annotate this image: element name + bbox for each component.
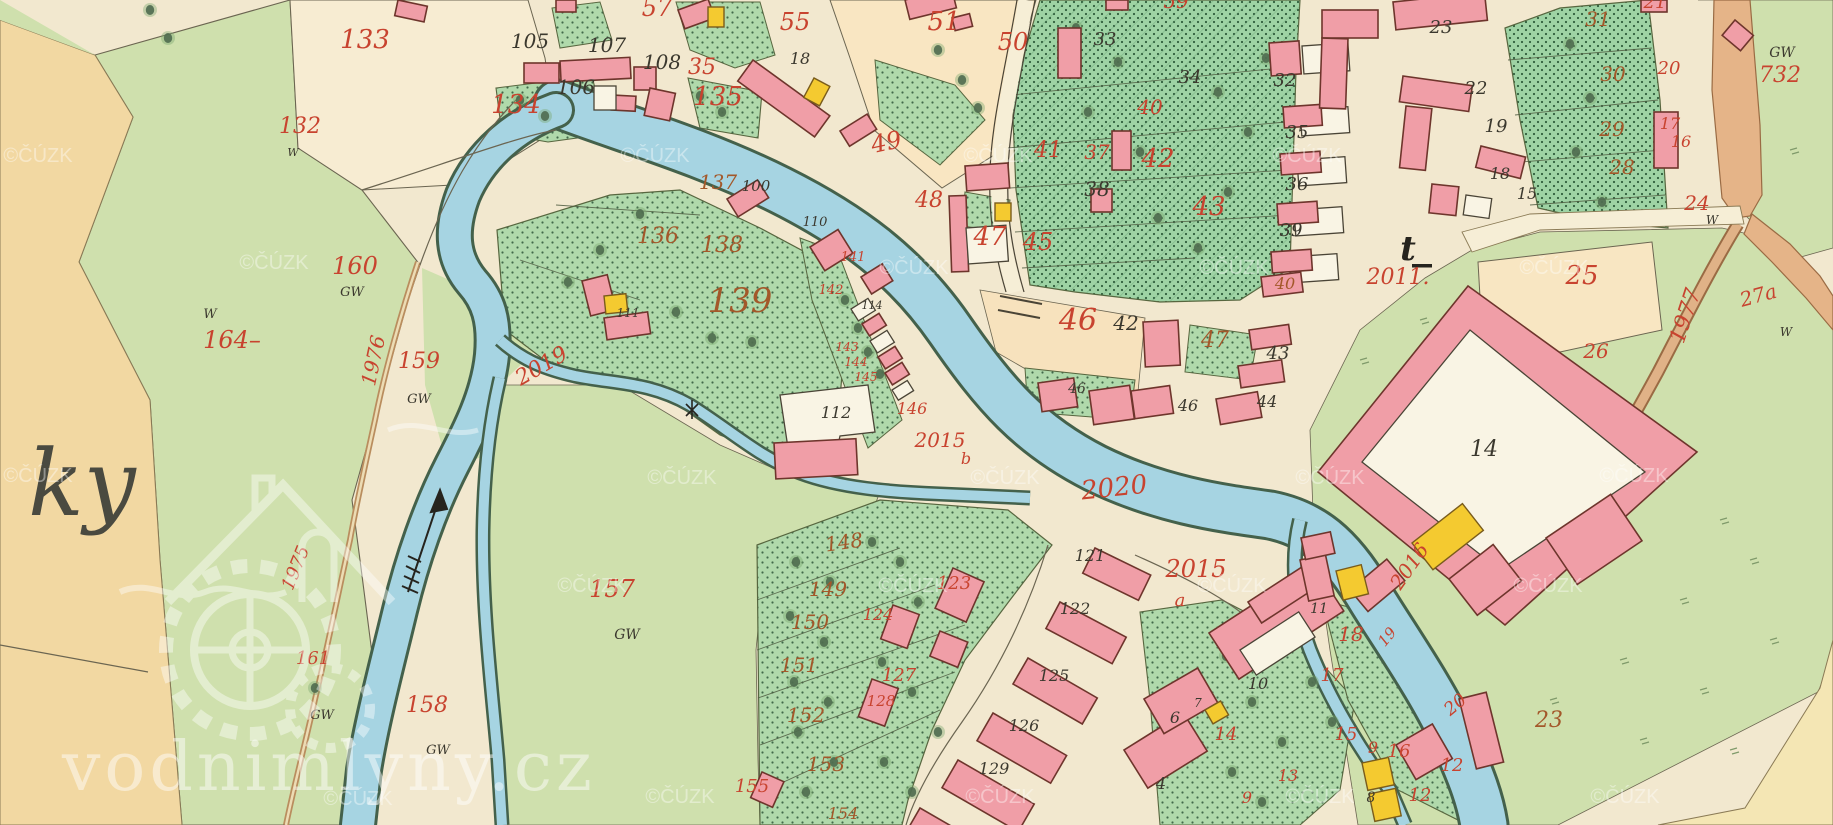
parcel-label-141: 141	[841, 250, 866, 265]
parcel-label-W: W	[1780, 325, 1794, 339]
parcel-label-GW: GW	[407, 392, 432, 407]
parcel-label-34: 34	[1179, 67, 1202, 88]
parcel-label-28: 28	[1608, 155, 1634, 179]
building-masonry	[1320, 38, 1348, 109]
tree-icon	[893, 555, 907, 569]
watermark-copyright: ©ČÚZK	[878, 574, 948, 597]
parcel-label-128: 128	[867, 692, 896, 710]
parcel-label-43: 43	[1266, 343, 1290, 364]
building-masonry	[949, 195, 969, 272]
parcel-label-15: 15	[1517, 184, 1537, 203]
tree-icon	[865, 535, 879, 549]
parcel-label-35: 35	[1286, 122, 1309, 143]
parcel-label-18: 18	[1490, 164, 1510, 183]
parcel-label-10: 10	[1248, 674, 1268, 693]
parcel-label-36: 36	[1286, 174, 1309, 195]
parcel-label-139: 139	[708, 281, 773, 321]
parcel-label-59: 59	[1163, 0, 1189, 13]
watermark-copyright: ©ČÚZK	[1272, 144, 1342, 167]
parcel-label-39: 39	[1280, 220, 1303, 241]
parcel-label-142: 142	[819, 283, 844, 298]
parcel-label-38: 38	[1084, 177, 1109, 201]
building-masonry	[524, 63, 559, 83]
watermark-copyright: ©ČÚZK	[323, 787, 393, 810]
tree-icon	[1081, 105, 1095, 119]
parcel-label-164–: 164–	[203, 326, 261, 354]
parcel-label-31: 31	[1585, 7, 1610, 31]
tree-icon	[1211, 85, 1225, 99]
parcel-label-17: 17	[1660, 114, 1681, 133]
parcel-label-47: 47	[972, 222, 1007, 252]
parcel-label-t: t	[1400, 229, 1416, 269]
watermark-copyright: ©ČÚZK	[1590, 785, 1660, 808]
watermark-copyright: ©ČÚZK	[1285, 785, 1355, 808]
parcel-label-48: 48	[914, 188, 943, 213]
watermark-copyright: ©ČÚZK	[3, 464, 73, 487]
building-outline	[594, 86, 616, 110]
tree-icon	[787, 675, 801, 689]
parcel-label-20: 20	[1657, 58, 1681, 79]
parcel-label-145: 145	[855, 370, 878, 384]
parcel-label-55: 55	[780, 8, 811, 36]
watermark-copyright: ©ČÚZK	[965, 785, 1035, 808]
parcel-label-125: 125	[1039, 666, 1070, 685]
tree-icon	[931, 43, 945, 57]
parcel-label-26: 26	[1582, 339, 1609, 363]
parcel-label-137: 137	[699, 170, 737, 194]
parcel-label-W: W	[1706, 213, 1720, 227]
parcel-label-150: 150	[791, 610, 829, 634]
parcel-label-135: 135	[693, 82, 743, 112]
parcel-label-149: 149	[809, 577, 847, 601]
tree-icon	[1245, 695, 1259, 709]
tree-icon	[1305, 675, 1319, 689]
tree-icon	[955, 73, 969, 87]
parcel-label-143: 143	[836, 340, 859, 354]
parcel-label-29: 29	[1598, 117, 1625, 141]
tree-icon	[799, 785, 813, 799]
parcel-label-35: 35	[688, 55, 716, 80]
parcel-label-GW: GW	[614, 627, 641, 643]
parcel-label-153: 153	[807, 752, 845, 776]
parcel-label-12: 12	[1409, 785, 1432, 806]
tree-icon	[593, 243, 607, 257]
parcel-label-37: 37	[1084, 140, 1110, 164]
watermark-copyright: ©ČÚZK	[1197, 574, 1267, 597]
tree-icon	[161, 31, 175, 45]
watermark-copyright: ©ČÚZK	[557, 574, 627, 597]
parcel-label-9: 9	[1368, 738, 1378, 757]
parcel-label-46: 46	[1177, 396, 1198, 415]
parcel-label-144: 144	[845, 355, 868, 369]
tree-icon	[791, 725, 805, 739]
tree-icon	[1225, 765, 1239, 779]
building-masonry	[556, 0, 576, 12]
tree-icon	[931, 725, 945, 739]
parcel-label-158: 158	[406, 693, 448, 718]
building-masonry	[1106, 0, 1128, 10]
parcel-label-100: 100	[742, 177, 771, 195]
parcel-label-138: 138	[701, 233, 743, 258]
parcel-label-14: 14	[1215, 724, 1238, 745]
parcel-label-23: 23	[1534, 708, 1563, 733]
parcel-label-40: 40	[1274, 274, 1295, 293]
parcel-label-124: 124	[863, 605, 894, 624]
parcel-label-11: 11	[1310, 601, 1328, 617]
tree-icon	[1255, 795, 1269, 809]
watermark-copyright: ©ČÚZK	[1519, 256, 1589, 279]
tree-icon	[971, 101, 985, 115]
building-masonry	[1429, 184, 1459, 216]
parcel-label-146: 146	[897, 399, 928, 418]
tree-icon	[911, 595, 925, 609]
parcel-label-160: 160	[332, 252, 378, 280]
building-masonry	[774, 439, 858, 479]
parcel-label-151: 151	[780, 653, 818, 677]
parcel-label-17: 17	[1321, 665, 1344, 686]
parcel-label-122: 122	[1060, 599, 1091, 618]
parcel-label-105: 105	[511, 29, 549, 53]
parcel-label-112: 112	[821, 403, 852, 422]
watermark-copyright: ©ČÚZK	[970, 466, 1040, 489]
parcel-label-18: 18	[1338, 622, 1363, 646]
parcel-label-42: 42	[1140, 144, 1174, 174]
building-masonry	[1112, 131, 1131, 170]
building-wood	[995, 203, 1011, 221]
parcel-label-7: 7	[1194, 696, 1202, 710]
parcel-label-121: 121	[1075, 546, 1106, 565]
parcel-label-22: 22	[1464, 78, 1488, 99]
tree-icon	[561, 275, 575, 289]
parcel-label-2015: 2015	[914, 428, 966, 452]
parcel-label-136: 136	[637, 224, 679, 249]
parcel-label-106: 106	[557, 75, 595, 99]
parcel-label-6: 6	[1170, 708, 1180, 727]
tree-icon	[143, 3, 157, 17]
parcel-label-9: 9	[1242, 788, 1252, 807]
parcel-label-132: 132	[279, 114, 321, 139]
cadastral-map: 1331325755351341355150594948413742434045…	[0, 0, 1833, 825]
parcel-label-108: 108	[643, 50, 681, 74]
tree-icon	[1569, 145, 1583, 159]
tree-icon	[745, 335, 759, 349]
map-stage: 1331325755351341355150594948413742434045…	[0, 0, 1833, 825]
tree-icon	[1563, 37, 1577, 51]
watermark-copyright: ©ČÚZK	[1199, 256, 1269, 279]
building-masonry	[1089, 385, 1134, 424]
parcel-label-15: 15	[1335, 724, 1358, 745]
parcel-label-111: 111	[617, 306, 640, 320]
building-masonry	[1322, 10, 1378, 38]
parcel-label-a: a	[1175, 590, 1186, 611]
parcel-label-43: 43	[1191, 192, 1225, 222]
parcel-label-114: 114	[862, 299, 883, 312]
parcel-label-47: 47	[1200, 328, 1229, 353]
parcel-label-b: b	[961, 449, 971, 468]
parcel-label-154: 154	[828, 804, 859, 823]
tree-icon	[905, 685, 919, 699]
tree-icon	[1111, 55, 1125, 69]
building-masonry	[965, 163, 1010, 191]
watermark-copyright: ©ČÚZK	[1295, 466, 1365, 489]
parcel-label-2011.: 2011.	[1366, 265, 1430, 290]
building-masonry	[1058, 28, 1081, 78]
watermark-copyright: ©ČÚZK	[879, 256, 949, 279]
tree-icon	[877, 755, 891, 769]
watermark-copyright: ©ČÚZK	[3, 144, 73, 167]
parcel-label-51: 51	[927, 7, 960, 37]
parcel-label-133: 133	[340, 25, 390, 55]
parcel-label-21: 21	[1643, 0, 1667, 13]
parcel-label-16: 16	[1388, 741, 1411, 762]
parcel-label-W: W	[203, 307, 218, 322]
watermark-copyright: ©ČÚZK	[647, 466, 717, 489]
watermark-copyright: ©ČÚZK	[645, 785, 715, 808]
parcel-label-152: 152	[787, 703, 825, 727]
building-masonry	[1271, 249, 1312, 273]
tree-icon	[905, 785, 919, 799]
parcel-label-41: 41	[1033, 138, 1062, 163]
parcel-label-16: 16	[1671, 132, 1691, 151]
watermark-copyright: ©ČÚZK	[620, 144, 690, 167]
building-masonry	[1400, 106, 1432, 170]
parcel-label-134: 134	[491, 90, 541, 120]
building-wood	[1362, 757, 1394, 790]
parcel-label-13: 13	[1278, 766, 1298, 785]
building-wood	[708, 7, 724, 27]
tree-icon	[1191, 241, 1205, 255]
parcel-label-44: 44	[1256, 392, 1277, 411]
tree-icon	[1595, 195, 1609, 209]
building-masonry	[1131, 386, 1174, 419]
parcel-label-159: 159	[398, 349, 440, 374]
parcel-label-107: 107	[588, 33, 626, 57]
parcel-label-8: 8	[1367, 790, 1376, 806]
parcel-label-129: 129	[979, 759, 1010, 778]
parcel-label-126: 126	[1009, 716, 1040, 735]
parcel-label-732: 732	[1759, 63, 1801, 88]
tree-icon	[1275, 735, 1289, 749]
parcel-label-45: 45	[1022, 228, 1054, 256]
tree-icon	[669, 305, 683, 319]
parcel-label-GW: GW	[1769, 45, 1796, 61]
parcel-label-30: 30	[1600, 62, 1626, 86]
parcel-label-127: 127	[882, 665, 917, 686]
watermark-copyright: ©ČÚZK	[1599, 464, 1669, 487]
parcel-label-GW: GW	[340, 285, 365, 300]
tree-icon	[789, 555, 803, 569]
parcel-label-57: 57	[642, 0, 673, 22]
building-masonry	[644, 88, 675, 121]
parcel-label-46: 46	[1067, 381, 1086, 397]
parcel-label-50: 50	[998, 28, 1029, 56]
watermark-copyright: ©ČÚZK	[1513, 574, 1583, 597]
building-masonry	[1143, 320, 1180, 367]
tree-icon	[705, 331, 719, 345]
parcel-label-32: 32	[1274, 70, 1297, 91]
parcel-label-33: 33	[1094, 29, 1117, 50]
tree-icon	[1151, 211, 1165, 225]
parcel-label-110: 110	[803, 215, 828, 230]
tree-icon	[817, 635, 831, 649]
parcel-label-23: 23	[1429, 17, 1453, 38]
parcel-label-4: 4	[1155, 774, 1166, 793]
parcel-label-12: 12	[1441, 755, 1464, 776]
parcel-label-24: 24	[1683, 191, 1709, 215]
tree-icon	[633, 207, 647, 221]
parcel-label-42: 42	[1112, 311, 1138, 335]
parcel-label-155: 155	[735, 776, 769, 797]
parcel-label-18: 18	[790, 49, 810, 68]
parcel-label-14: 14	[1470, 437, 1498, 462]
tree-icon	[1583, 91, 1597, 105]
building-outline	[1463, 195, 1492, 218]
watermark-copyright: ©ČÚZK	[963, 144, 1033, 167]
parcel-label-40: 40	[1136, 95, 1163, 119]
watermark-copyright: ©ČÚZK	[239, 251, 309, 274]
parcel-label-46: 46	[1058, 303, 1097, 338]
tree-icon	[1241, 125, 1255, 139]
parcel-label-19: 19	[1485, 116, 1508, 137]
parcel-label-W: W	[287, 146, 300, 159]
